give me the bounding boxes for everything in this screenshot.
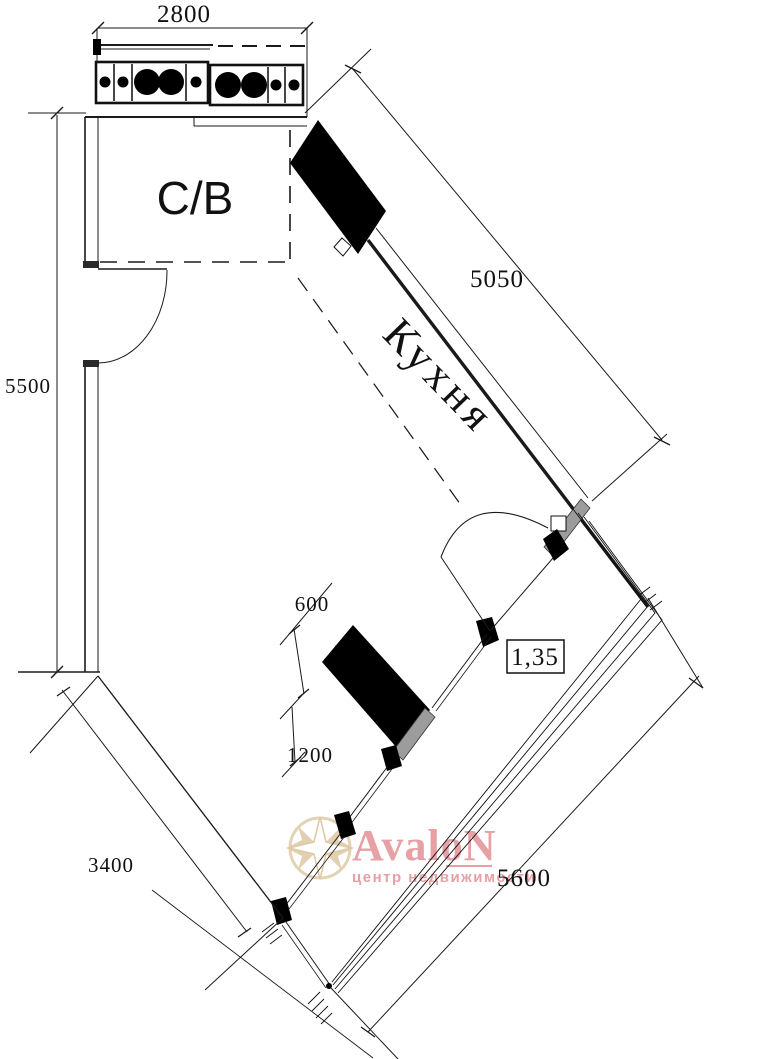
facade-wall-left — [98, 676, 283, 918]
construction-line — [152, 890, 373, 1058]
dim-3400-label: 3400 — [88, 853, 134, 877]
wall-tick — [93, 39, 101, 55]
vent-duct-circle — [289, 80, 300, 91]
dim-5050-label: 5050 — [470, 266, 524, 293]
floor-plan: AvaloN центр недвижимости 2800 — [0, 0, 777, 1059]
vent-duct-circle — [241, 72, 267, 98]
dim-5600-label: 5600 — [497, 865, 551, 892]
door-jamb — [83, 261, 99, 268]
window-wall — [262, 625, 491, 989]
wall-pylon-top — [290, 120, 386, 254]
dim-5050: 5050 — [305, 49, 670, 501]
vent-duct-circle — [215, 72, 241, 98]
dim-600-1200: 600 1200 — [280, 583, 333, 777]
vent-duct-circle — [271, 80, 282, 91]
balcony-railing — [308, 509, 662, 1024]
dim-5500-label: 5500 — [5, 374, 51, 398]
bathroom-label: С/В — [157, 172, 234, 224]
kitchen-label: Кухня — [374, 309, 506, 443]
dim-2800-label: 2800 — [157, 1, 211, 28]
entrance-door — [441, 512, 553, 631]
entry-width-box: 1,35 — [507, 640, 564, 673]
vent-block-right — [210, 65, 303, 105]
kitchen-outer-wall — [290, 120, 662, 610]
vent-duct-circle — [191, 77, 202, 88]
door-jamb — [476, 617, 499, 647]
entrance-wall — [441, 499, 590, 647]
dim-1200-label: 1200 — [287, 743, 333, 767]
entry-width-label: 1,35 — [511, 644, 559, 671]
jamb-hatch — [262, 923, 282, 944]
floor-plan-page: AvaloN центр недвижимости 2800 — [0, 0, 777, 1059]
vent-duct-circle — [134, 69, 160, 95]
dim-600-label: 600 — [295, 592, 330, 616]
bathroom-door — [83, 261, 167, 367]
door-swing-arc — [98, 270, 167, 363]
dim-3400: 3400 — [30, 676, 283, 990]
railing-end-hatch — [308, 992, 332, 1024]
vent-duct-circle — [100, 77, 111, 88]
watermark-brand: AvaloN — [352, 821, 497, 870]
entrance-notch — [551, 516, 566, 531]
vent-shaft-blocks — [93, 39, 308, 105]
vent-duct-circle — [118, 77, 129, 88]
door-swing-arc — [441, 512, 548, 557]
door-jamb — [83, 360, 99, 367]
vent-duct-circle — [158, 69, 184, 95]
vent-block-left — [96, 62, 208, 103]
